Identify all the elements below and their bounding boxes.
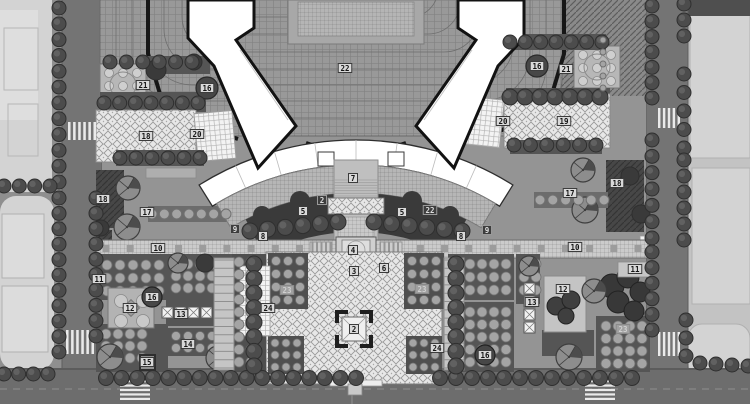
label-chip-7-13: 7 (349, 174, 358, 183)
tree-highlight (163, 372, 170, 379)
tree-highlight (248, 316, 255, 323)
context-building-outline (2, 214, 44, 278)
circular-plaza-center (528, 265, 530, 267)
tree-highlight (681, 315, 687, 321)
promenade-tiles (127, 245, 134, 252)
tree-highlight (647, 47, 653, 53)
tree-highlight (450, 316, 457, 323)
crosswalk (68, 122, 71, 140)
tree-highlight (450, 287, 457, 294)
tree-cluster (558, 308, 574, 324)
tree-highlight (54, 193, 60, 199)
circular-plaza-center (584, 209, 586, 211)
planter-tree-icon (607, 51, 616, 60)
label-chip-3-25: 3 (350, 267, 359, 276)
tree-highlight (610, 372, 617, 379)
label-chip-19-8: 19 (557, 117, 571, 126)
planter-tree-icon (607, 64, 616, 73)
planter-tree-icon (579, 64, 588, 73)
planter-tree-icon (409, 363, 417, 371)
planter-tree-icon (137, 341, 147, 351)
label-chip-text: 7 (351, 174, 356, 183)
tree-highlight (170, 57, 176, 63)
label-chip-text: 13 (527, 298, 537, 307)
planter-tree-icon (579, 51, 588, 60)
tree-highlight (679, 87, 685, 93)
tree-highlight (647, 167, 653, 173)
tree-highlight (647, 62, 653, 68)
planter-tree-icon (465, 320, 475, 330)
tree-highlight (679, 124, 685, 130)
label-chip-5-15: 5 (398, 208, 407, 217)
promenade-tiles (465, 245, 472, 252)
tree-highlight (131, 153, 137, 159)
tree-highlight (193, 98, 199, 104)
tree-highlight (647, 278, 653, 284)
label-chip-text: 9 (485, 226, 490, 235)
planter-tree-icon (465, 357, 475, 367)
planter-tree-icon (625, 334, 635, 344)
planter-tree-icon (465, 272, 475, 282)
tree-highlight (647, 1, 653, 7)
tree-highlight (594, 372, 601, 379)
label-chip-text: 22 (340, 64, 349, 73)
label-chip-text: 21 (561, 65, 571, 74)
label-chip-8-20: 8 (259, 232, 268, 241)
tree-highlight (187, 57, 193, 63)
tree-highlight (647, 135, 653, 141)
planter-tree-icon (477, 272, 487, 282)
planter-tree-icon (234, 332, 244, 342)
tree-highlight (99, 98, 105, 104)
planter-tree-icon (284, 270, 293, 279)
label-chip-text: 18 (98, 195, 108, 204)
planter-tree-icon (234, 345, 244, 355)
planter-tree-icon (272, 270, 281, 279)
tree-highlight (248, 273, 255, 280)
label-chip-text: 18 (141, 132, 151, 141)
label-chip-text: 14 (183, 340, 193, 349)
planter-tree-icon (196, 332, 205, 341)
tree-highlight (194, 372, 201, 379)
planter-tree-icon (431, 363, 439, 371)
tree-highlight (647, 247, 653, 253)
label-chip-text: 24 (263, 304, 273, 313)
planter-tree-icon (293, 339, 301, 347)
label-chip-text: 18 (612, 179, 622, 188)
planter-tree-icon (489, 272, 499, 282)
planter-tree-icon (282, 351, 290, 359)
planter-tree-icon (115, 315, 128, 328)
crosswalk (120, 393, 150, 395)
tree-highlight (579, 91, 586, 98)
promenade-tiles (610, 245, 617, 252)
tree-highlight (549, 91, 556, 98)
tree-highlight (450, 273, 457, 280)
label-chip-13-36: 13 (525, 298, 539, 307)
tree-highlight (28, 369, 34, 375)
planter-tree-icon (234, 357, 244, 367)
label-chip-24-34: 24 (261, 304, 275, 313)
tree-highlight (591, 140, 597, 146)
tree-highlight (332, 216, 339, 223)
planter-tree-icon (625, 359, 635, 369)
tree-highlight (54, 113, 60, 119)
circular-plaza-center (177, 262, 179, 264)
label-chip-text: 16 (532, 62, 542, 71)
planter-tree-icon (282, 339, 290, 347)
planter-tree-icon (154, 273, 164, 283)
planter-tree-icon (296, 270, 305, 279)
tree-highlight (195, 153, 201, 159)
tree-highlight (105, 57, 111, 63)
planter-tree-icon (154, 260, 164, 270)
tree-highlight (177, 98, 183, 104)
circular-plaza-center (126, 226, 128, 228)
planter-tree-icon (579, 77, 588, 86)
planter-tree-icon (601, 359, 611, 369)
context-building-outline (2, 286, 48, 352)
tree-highlight (647, 184, 653, 190)
tree-highlight (647, 93, 653, 99)
label-chip-21-6: 21 (559, 65, 573, 74)
shrub-row (548, 195, 558, 205)
tree-highlight (509, 140, 515, 146)
tree-highlight (498, 372, 505, 379)
planter-tree-icon (115, 260, 125, 270)
planter-tree-icon (601, 334, 611, 344)
label-chip-text: 10 (153, 244, 163, 253)
promenade-tiles (175, 245, 182, 252)
label-chip-text: 10 (570, 243, 580, 252)
tree-highlight (562, 372, 569, 379)
label-chip-text: 23 (282, 286, 292, 295)
label-chip-17-12: 17 (563, 189, 577, 198)
planter-tree-icon (637, 334, 647, 344)
label-chip-text: 23 (417, 285, 427, 294)
plan-render-root: 2221161820162120191817181775522299881010… (0, 0, 750, 404)
label-chip-12-35: 12 (556, 285, 570, 294)
promenade-tiles (223, 245, 230, 252)
planter-tree-icon (420, 257, 429, 266)
promenade-tiles (538, 245, 545, 252)
planter-tree-icon (613, 334, 623, 344)
planter-tree-icon (477, 259, 487, 269)
planter-tree-icon (141, 260, 151, 270)
tree-highlight (520, 37, 526, 43)
planter-tree-icon (172, 344, 181, 353)
tree-highlight (29, 181, 35, 187)
crosswalk (78, 122, 81, 140)
planter-tree-icon (128, 273, 138, 283)
tree-highlight (248, 287, 255, 294)
planter-tree-icon (613, 346, 623, 356)
planter-tree-icon (489, 320, 499, 330)
planter-tree-icon (271, 339, 279, 347)
label-chip-18-9: 18 (96, 195, 110, 204)
planter-tree-icon (196, 344, 205, 353)
tree-highlight (403, 220, 410, 227)
planter-tree-icon (432, 283, 441, 292)
tree-highlight (368, 216, 375, 223)
crosswalk (658, 108, 660, 128)
planter-tree-icon (409, 339, 417, 347)
label-chip-text: 12 (125, 304, 134, 313)
tree-highlight (647, 200, 653, 206)
tree-highlight (54, 316, 60, 322)
planter-tree-icon (293, 363, 301, 371)
tree-highlight (54, 270, 60, 276)
planter-tree-icon (465, 332, 475, 342)
tree-highlight (54, 82, 60, 88)
tree-highlight (647, 309, 653, 315)
promenade-tiles (272, 245, 279, 252)
arc-pavilion (318, 152, 334, 166)
planter-tree-icon (172, 332, 181, 341)
promenade-tiles (586, 245, 593, 252)
planter-tree-icon (234, 282, 244, 292)
tree-highlight (248, 331, 255, 338)
tree-highlight (54, 145, 60, 151)
tree-highlight (438, 223, 445, 230)
tree-highlight (578, 372, 585, 379)
label-chip-23-29: 23 (280, 286, 294, 295)
shrub-dots (600, 37, 606, 43)
label-chip-6-26: 6 (380, 264, 389, 273)
tree-highlight (743, 361, 749, 367)
planter-tree-icon (272, 257, 281, 266)
planter-tree-icon (501, 272, 511, 282)
tree-highlight (91, 254, 97, 260)
tree-highlight (146, 98, 152, 104)
tree-highlight (279, 221, 286, 228)
planter-tree-icon (133, 69, 142, 78)
tree-highlight (147, 372, 154, 379)
label-chip-text: 23 (618, 325, 628, 334)
tree-highlight (54, 224, 60, 230)
label-chip-text: 12 (558, 285, 567, 294)
tree-highlight (91, 208, 97, 214)
tree-highlight (132, 372, 139, 379)
tree-highlight (54, 50, 60, 56)
tree-highlight (679, 203, 685, 209)
planter-tree-icon (125, 341, 135, 351)
planter-tree-icon (183, 283, 193, 293)
planter-tree-icon (465, 345, 475, 355)
tree-highlight (262, 223, 269, 230)
promenade-tiles (103, 245, 110, 252)
planter-tree-icon (420, 363, 428, 371)
crosswalk (120, 389, 150, 391)
label-chip-text: 4 (351, 246, 356, 255)
large-tree (196, 254, 214, 272)
planter-tree-icon (296, 296, 305, 305)
label-chip-10-23: 10 (568, 243, 582, 252)
planter-tree-icon (234, 320, 244, 330)
promenade-tiles (248, 245, 255, 252)
tree-highlight (679, 171, 685, 177)
tree-highlight (647, 294, 653, 300)
label-chip-12-32: 12 (123, 304, 137, 313)
planter-tree-icon (271, 351, 279, 359)
label-chip-text: 9 (233, 225, 238, 234)
tree-highlight (564, 91, 571, 98)
label-chip-text: 20 (498, 117, 508, 126)
planter-tree-icon (489, 307, 499, 317)
planter-tree-icon (607, 77, 616, 86)
tree-highlight (248, 360, 255, 367)
context-building-outline (690, 10, 750, 158)
tree-highlight (14, 181, 20, 187)
label-chip-22-16: 22 (423, 206, 437, 215)
planter-tree-icon (420, 351, 428, 359)
tree-cluster (624, 301, 644, 321)
planter-tree-icon (408, 296, 417, 305)
context-building-outline (692, 168, 750, 304)
tree-highlight (91, 300, 97, 306)
promenade-tiles (514, 245, 521, 252)
tree-highlight (679, 15, 685, 21)
planter-tree-icon (501, 307, 511, 317)
tree-highlight (679, 106, 685, 112)
tree-highlight (116, 372, 123, 379)
tree-highlight (542, 140, 548, 146)
label-chip-text: 11 (630, 265, 640, 274)
tree-highlight (647, 233, 653, 239)
tree-highlight (54, 129, 60, 135)
label-chip-text: 20 (192, 130, 202, 139)
tree-highlight (114, 98, 120, 104)
label-chip-text: 24 (432, 344, 442, 353)
tree-highlight (272, 372, 279, 379)
label-chip-16-2: 16 (200, 84, 214, 93)
tree-highlight (91, 331, 97, 337)
tree-highlight (581, 37, 587, 43)
tree-highlight (248, 258, 255, 265)
planter-tree-icon (501, 332, 511, 342)
label-chip-text: 5 (301, 207, 306, 216)
label-chip-16-41: 16 (478, 351, 492, 360)
crosswalk (668, 332, 670, 356)
tree-highlight (54, 301, 60, 307)
crosswalk (83, 122, 86, 140)
planter-tree-icon (420, 339, 428, 347)
circular-plaza-center (568, 356, 570, 358)
tree-highlight (679, 143, 685, 149)
crosswalk (585, 389, 615, 391)
tree-highlight (248, 345, 255, 352)
label-chip-text: 15 (142, 358, 151, 367)
tree-highlight (45, 181, 51, 187)
shrub-row (196, 209, 206, 219)
tree-highlight (450, 331, 457, 338)
tree-highlight (43, 369, 49, 375)
tree-highlight (594, 91, 601, 98)
tree-highlight (13, 369, 19, 375)
roof-core-inner-texture (298, 2, 414, 36)
crosswalk (81, 330, 84, 354)
planter-tree-icon (282, 363, 290, 371)
tree-highlight (679, 69, 685, 75)
planter-tree-icon (119, 82, 128, 91)
tree-highlight (100, 372, 107, 379)
tree-highlight (482, 372, 489, 379)
planter-tree-icon (489, 332, 499, 342)
tree-highlight (647, 216, 653, 222)
tree-highlight (244, 225, 251, 232)
label-chip-20-7: 20 (496, 117, 510, 126)
label-chip-text: 13 (176, 310, 186, 319)
planter-tree-icon (102, 260, 112, 270)
planter-tree-icon (637, 346, 647, 356)
tree-highlight (386, 218, 393, 225)
crosswalk (673, 332, 675, 356)
label-chip-2-17: 2 (318, 196, 327, 205)
planter-tree-icon (115, 273, 125, 283)
tree-highlight (335, 372, 342, 379)
tree-highlight (626, 372, 633, 379)
shrub-dots (600, 61, 606, 67)
tree-highlight (695, 358, 701, 364)
label-chip-18-11: 18 (610, 179, 624, 188)
shrub-row (159, 209, 169, 219)
tree-highlight (647, 262, 653, 268)
planter-tree-icon (501, 345, 511, 355)
label-chip-text: 8 (459, 232, 464, 241)
label-chip-8-21: 8 (457, 232, 466, 241)
label-chip-17-10: 17 (140, 208, 154, 217)
tree-highlight (54, 285, 60, 291)
planter-tree-icon (432, 270, 441, 279)
tree-highlight (530, 372, 537, 379)
shrub-dots (600, 85, 606, 91)
context-grove-ne (688, 0, 750, 16)
planter-tree-icon (234, 307, 244, 317)
label-chip-23-37: 23 (616, 325, 630, 334)
tree-highlight (647, 325, 653, 331)
planter-tree-icon (119, 69, 128, 78)
tree-highlight (54, 19, 60, 25)
planter-tree-icon (141, 273, 151, 283)
tree-highlight (54, 331, 60, 337)
tree-highlight (54, 66, 60, 72)
tree-highlight (161, 98, 167, 104)
planter-tree-icon (477, 307, 487, 317)
tree-highlight (319, 372, 326, 379)
label-chip-15-40: 15 (140, 358, 154, 367)
promenade-tiles (635, 245, 642, 252)
planter-tree-icon (465, 307, 475, 317)
tree-highlight (54, 347, 60, 353)
tree-highlight (514, 372, 521, 379)
planter-tree-icon (465, 259, 475, 269)
shrub-row (599, 195, 609, 205)
label-chip-text: 17 (142, 208, 151, 217)
planter-tree-icon (128, 260, 138, 270)
shrub-row (209, 209, 219, 219)
label-chip-16-31: 16 (145, 293, 159, 302)
planter-tree-icon (420, 270, 429, 279)
tree-highlight (54, 34, 60, 40)
tree-highlight (504, 91, 511, 98)
planter-tree-icon (234, 270, 244, 280)
crosswalk (73, 122, 76, 140)
shrub-row (184, 209, 194, 219)
tree-highlight (248, 302, 255, 309)
tree-highlight (535, 37, 541, 43)
planter-tree-icon (105, 69, 114, 78)
tree-highlight (225, 372, 232, 379)
